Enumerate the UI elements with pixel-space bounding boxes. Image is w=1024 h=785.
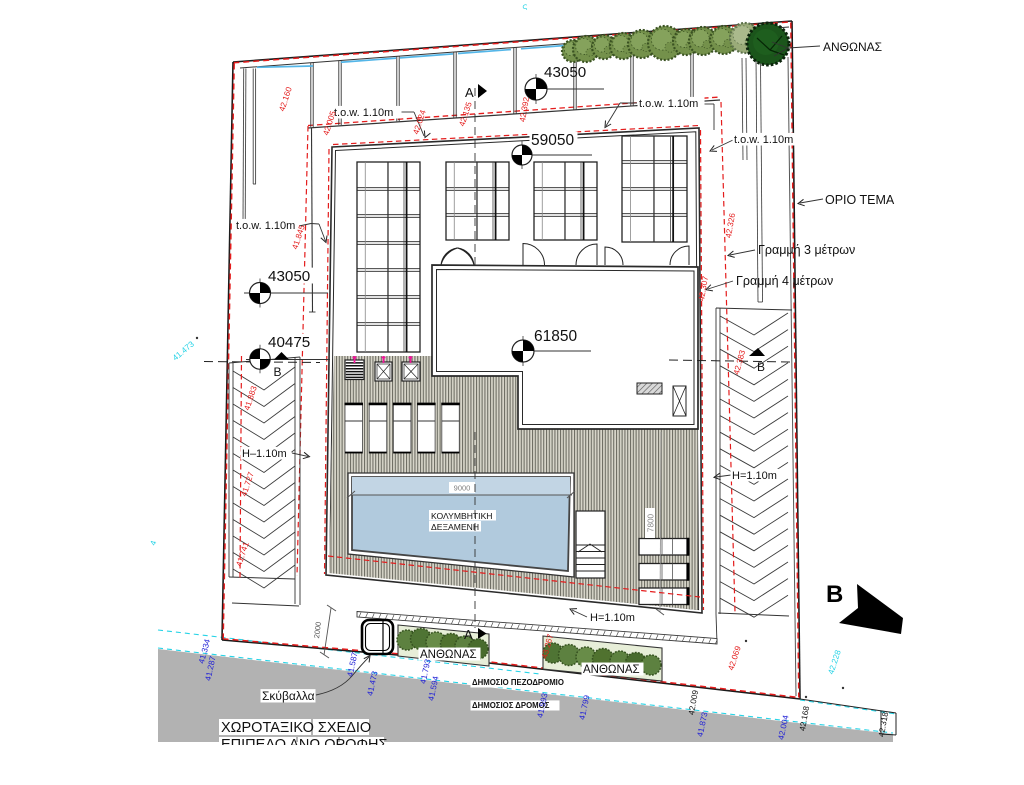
svg-text:t.o.w. 1.10m: t.o.w. 1.10m <box>639 98 698 110</box>
svg-text:ΑΝΘΩΝΑΣ: ΑΝΘΩΝΑΣ <box>823 40 882 54</box>
svg-text:7800: 7800 <box>647 513 656 532</box>
svg-text:9000: 9000 <box>454 484 471 493</box>
svg-text:ΟΡΙΟ ΤΕΜΑ: ΟΡΙΟ ΤΕΜΑ <box>825 193 895 207</box>
svg-text:ΔΕΞΑΜΕΝΗ: ΔΕΞΑΜΕΝΗ <box>431 522 479 532</box>
svg-text:43050: 43050 <box>544 64 586 81</box>
svg-text:t.o.w. 1.10m: t.o.w. 1.10m <box>734 134 793 146</box>
svg-text:t.o.w. 1.10m: t.o.w. 1.10m <box>334 107 393 119</box>
svg-text:H–1.10m: H–1.10m <box>242 448 287 460</box>
svg-text:H=1.10m: H=1.10m <box>590 612 635 624</box>
svg-text:B: B <box>757 360 765 374</box>
svg-text:ΑΝΘΩΝΑΣ: ΑΝΘΩΝΑΣ <box>583 664 640 676</box>
svg-text:Σκύβαλλα: Σκύβαλλα <box>262 689 315 703</box>
svg-text:B: B <box>826 581 843 608</box>
svg-text:A: A <box>465 85 474 100</box>
svg-text:ΧΩΡΟΤΑΞΙΚΟ ΣΧΕΔΙΟ: ΧΩΡΟΤΑΞΙΚΟ ΣΧΕΔΙΟ <box>221 720 371 736</box>
svg-text:ΚΟΛΥΜΒΗΤΙΚΗ: ΚΟΛΥΜΒΗΤΙΚΗ <box>431 511 493 521</box>
svg-text:t.o.w. 1.10m: t.o.w. 1.10m <box>236 220 295 232</box>
svg-text:Γραμμή 4 μέτρων: Γραμμή 4 μέτρων <box>736 274 833 288</box>
svg-text:59050: 59050 <box>531 132 574 149</box>
svg-text:ΑΝΘΩΝΑΣ: ΑΝΘΩΝΑΣ <box>420 649 477 661</box>
svg-text:B: B <box>274 365 282 379</box>
svg-text:ΔΗΜΟΣΙΟ ΠΕΖΟΔΡΟΜΙΟ: ΔΗΜΟΣΙΟ ΠΕΖΟΔΡΟΜΙΟ <box>472 678 564 687</box>
svg-text:H=1.10m: H=1.10m <box>732 470 777 482</box>
svg-text:A: A <box>464 627 473 642</box>
svg-text:40475: 40475 <box>268 334 310 351</box>
svg-text:61850: 61850 <box>534 328 577 345</box>
svg-text:Γραμμή 3 μέτρων: Γραμμή 3 μέτρων <box>758 243 855 257</box>
svg-text:43050: 43050 <box>268 268 310 285</box>
